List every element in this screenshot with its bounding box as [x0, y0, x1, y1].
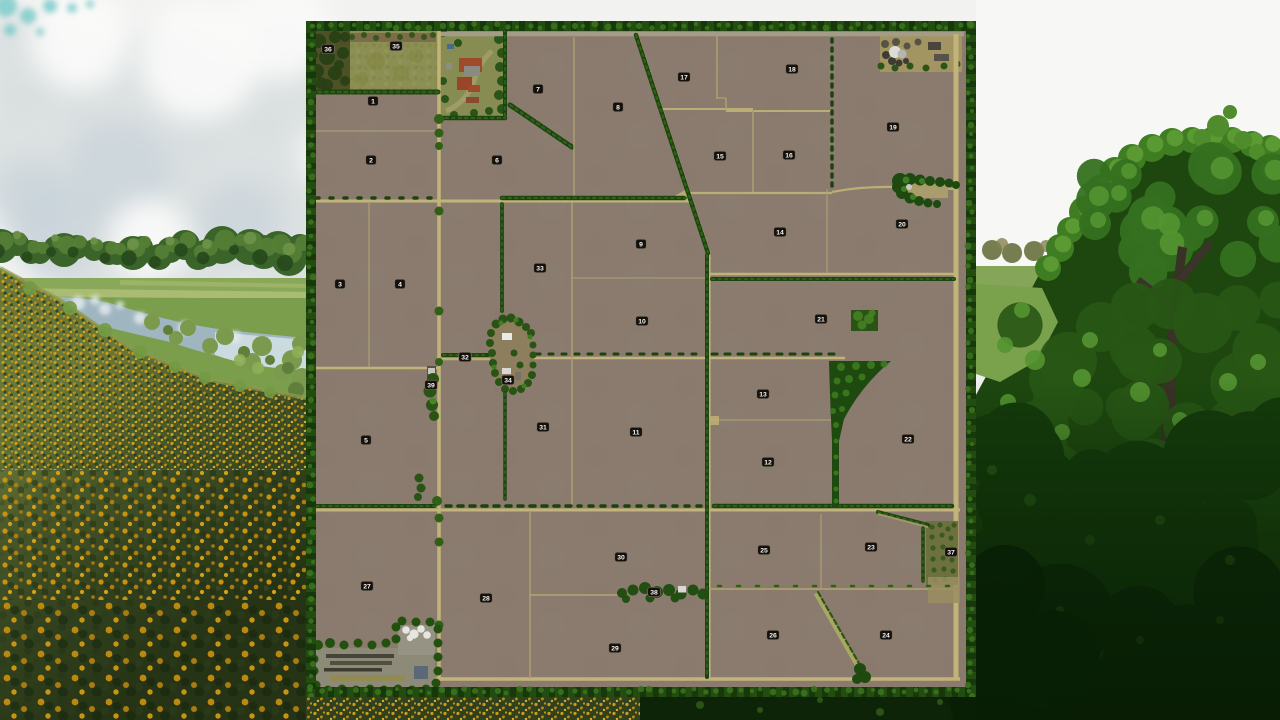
svg-text:35: 35 — [392, 44, 400, 51]
svg-text:8: 8 — [616, 105, 620, 112]
svg-text:32: 32 — [461, 355, 469, 362]
svg-text:23: 23 — [867, 545, 875, 552]
svg-text:2: 2 — [369, 158, 373, 165]
svg-text:38: 38 — [650, 590, 658, 597]
svg-text:39: 39 — [427, 383, 435, 390]
svg-text:27: 27 — [363, 584, 371, 591]
svg-text:15: 15 — [716, 154, 724, 161]
svg-text:33: 33 — [536, 266, 544, 273]
svg-text:22: 22 — [904, 437, 912, 444]
svg-text:34: 34 — [504, 378, 512, 385]
svg-text:28: 28 — [482, 596, 490, 603]
svg-text:26: 26 — [769, 633, 777, 640]
svg-text:17: 17 — [680, 75, 688, 82]
svg-text:4: 4 — [398, 282, 402, 289]
svg-text:12: 12 — [764, 460, 772, 467]
svg-text:13: 13 — [759, 392, 767, 399]
svg-text:21: 21 — [817, 317, 825, 324]
svg-text:30: 30 — [617, 555, 625, 562]
svg-text:6: 6 — [495, 158, 499, 165]
svg-text:10: 10 — [638, 319, 646, 326]
svg-text:5: 5 — [364, 438, 368, 445]
svg-text:7: 7 — [536, 87, 540, 94]
svg-text:36: 36 — [324, 47, 332, 54]
svg-text:16: 16 — [785, 153, 793, 160]
svg-text:31: 31 — [539, 425, 547, 432]
svg-text:20: 20 — [898, 222, 906, 229]
svg-text:19: 19 — [889, 125, 897, 132]
svg-text:25: 25 — [760, 548, 768, 555]
svg-text:3: 3 — [338, 282, 342, 289]
svg-text:37: 37 — [947, 550, 955, 557]
svg-text:29: 29 — [611, 646, 619, 653]
svg-text:9: 9 — [639, 242, 643, 249]
svg-text:1: 1 — [371, 99, 375, 106]
svg-text:14: 14 — [776, 230, 784, 237]
svg-text:11: 11 — [632, 430, 639, 437]
svg-text:18: 18 — [788, 67, 796, 74]
svg-text:24: 24 — [882, 633, 890, 640]
